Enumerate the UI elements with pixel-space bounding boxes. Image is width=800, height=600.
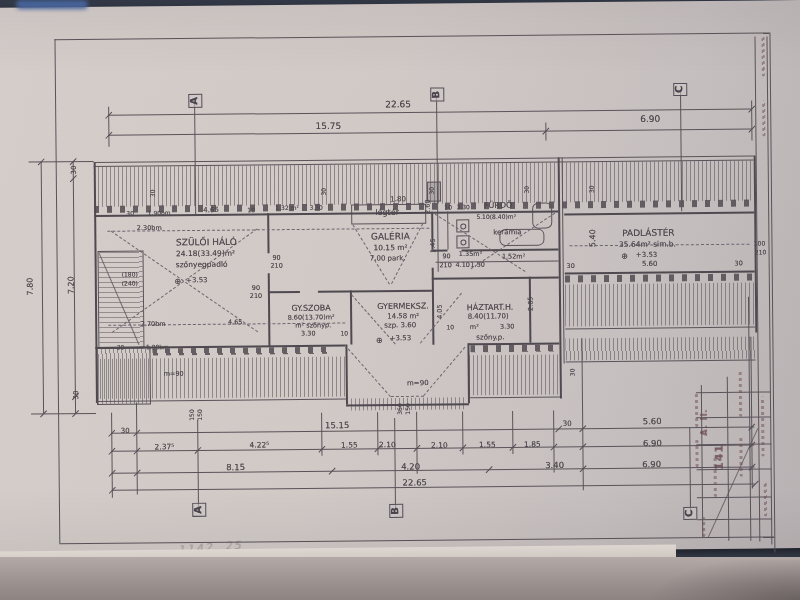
stamp-scribble [764, 482, 767, 516]
table-shadow [540, 560, 800, 600]
dim-label: 1.90bm [148, 210, 171, 217]
room-label-furdo: FÜRDŐ [484, 202, 513, 211]
dim-label: 6.90 [640, 115, 660, 125]
dim-label: 4.65 [203, 207, 219, 214]
section-marker-b: B [430, 88, 444, 102]
dim-label: 30 [321, 188, 327, 196]
dim-label: 5.60 [643, 417, 662, 426]
section-marker-c: C [673, 83, 687, 96]
balcony-hatch-block [96, 346, 151, 405]
plan-line [194, 102, 196, 214]
plan-line [108, 129, 751, 136]
dim-label: 35.64m² sim.b. [619, 240, 676, 248]
dim-label: 4.22⁵ [249, 441, 269, 449]
plan-line [436, 260, 559, 262]
section-marker-a: A [188, 94, 202, 108]
dim-label: 30 [71, 166, 78, 175]
dim-tick [752, 481, 759, 488]
roof-dash-line [348, 348, 391, 397]
stamp-scribble [702, 517, 705, 537]
roof-hatch-wing-1 [565, 283, 755, 327]
section-marker-a-bottom: A [192, 503, 206, 517]
plan-line [59, 536, 774, 544]
dim-label: 10 [444, 204, 452, 210]
plan-line [345, 345, 347, 405]
dim-label: 90 [252, 285, 260, 292]
dim-label: 1.55 [341, 441, 358, 449]
dim-label: 100 [754, 240, 766, 246]
dim-label: 4.65 [228, 319, 243, 326]
stamp-scribble [739, 437, 742, 477]
dim-label: 15.15 [325, 421, 349, 430]
dim-label: 1.85 [524, 441, 541, 449]
plan-line [267, 213, 269, 253]
dim-label: 2.65 [528, 296, 535, 311]
level-mark-icon: ⊕ [174, 278, 181, 286]
plan-line [565, 327, 755, 330]
level-mark-icon: ⊕ [376, 337, 383, 345]
dim-label: 7.80 [27, 278, 36, 296]
dim-label: 14.58 m² [387, 313, 419, 321]
dim-label: 210 [439, 262, 451, 269]
dim-label: 10.15 m² [373, 244, 407, 252]
stamp-scribble [695, 437, 698, 467]
dim-label: 210 [250, 293, 262, 300]
dim-label: 4.10 [455, 262, 470, 269]
dim-label: 30 [121, 428, 130, 435]
dim-label: 5.10(8.40)m² [476, 214, 516, 221]
stamp-text: 141 [714, 444, 726, 470]
dim-label: 3.30 [301, 330, 316, 337]
plan-line [696, 391, 771, 393]
dim-label: 2.30bm [137, 225, 162, 232]
dim-label: 6.90 [642, 460, 661, 469]
dim-label: kerámia [493, 229, 521, 237]
dim-label: 22.65 [403, 478, 427, 487]
dim-label: 2.60 [425, 199, 432, 214]
dim-label: 1.32 m² [275, 205, 299, 212]
dim-label: +3.53 [636, 252, 658, 260]
dim-label: (180) [122, 271, 138, 277]
plan-line [564, 212, 754, 215]
plan-line [41, 161, 44, 413]
stamp-scribble [762, 100, 765, 136]
plan-line [268, 273, 270, 346]
dim-label: 1.80 [390, 196, 406, 203]
plan-line [54, 32, 769, 40]
dim-label: 1.90bm [146, 344, 169, 351]
plan-line [727, 377, 730, 541]
room-label-galeria: GALÉRIA [371, 232, 410, 242]
dim-label: szőny.p. [476, 334, 504, 342]
plan-stage: 22.6515.756.90ABCABC307.207.803030303030… [0, 0, 800, 600]
dim-label: 30 [563, 421, 572, 428]
plan-line [111, 413, 113, 498]
dim-label: 10 [247, 207, 255, 213]
dim-label: 6.90 [643, 439, 662, 448]
plan-line [197, 420, 199, 512]
dryer-appliance [456, 235, 469, 248]
dim-label: szp. 3.60 [384, 322, 416, 330]
room-label-haztart: HÁZTART.H. [467, 304, 514, 313]
dim-label: 30 [126, 210, 134, 216]
photo-scene: 22.6515.756.90ABCABC307.207.803030303030… [0, 0, 800, 600]
dim-label: 8.15 [226, 463, 245, 472]
plan-line [394, 418, 396, 514]
room-label-gyszoba: GY.SZOBA [291, 304, 331, 313]
dim-label: 1.45 [430, 238, 437, 253]
dim-label: 4.05 [437, 304, 444, 319]
level-mark-icon: ⊕ [621, 253, 628, 261]
room-label-padlaster: PADLÁSTÉR [622, 229, 675, 239]
plan-line [350, 290, 352, 344]
dim-label: 150 [405, 403, 411, 415]
dim-label: 1.52m² [502, 253, 525, 260]
dim-label: 360 [397, 403, 403, 415]
dim-label: 7.00 park. [370, 255, 406, 263]
dim-label: 30 [570, 368, 576, 376]
plan-line [432, 268, 434, 345]
plan-line [697, 468, 772, 470]
dim-label: 3.30 [309, 205, 322, 211]
plan-line [697, 496, 772, 498]
room-label-szuloi-halo: SZÜLŐI HÁLÓ [176, 238, 237, 248]
dim-label: 1.50 [470, 262, 485, 269]
stamp-scribble [761, 397, 765, 457]
roof-hatch-bottom-right [469, 354, 560, 395]
plan-line [112, 484, 755, 491]
dim-label: m² szőnyp. [295, 322, 331, 329]
window-row-bottom-left [152, 347, 332, 356]
room-label-gyermeksz: GYERMEKSZ. [377, 303, 429, 312]
dim-label: 210 [270, 263, 282, 270]
stamp-scribble [695, 393, 698, 427]
dim-label: 90 [272, 255, 280, 262]
dim-label: 15.75 [315, 122, 341, 132]
dim-label: 4.20 [401, 462, 420, 471]
dim-label: 2.37⁵ [155, 443, 175, 451]
rafter-row-wing [565, 274, 755, 283]
dim-label: m² [470, 324, 479, 331]
dim-label: 1.55 [479, 441, 496, 449]
room-label-legter: légtér [375, 209, 399, 218]
dim-label: 30 [589, 185, 595, 193]
window-row-bottom-right [470, 345, 556, 353]
plan-line [54, 39, 60, 543]
section-marker-b-bottom: B [389, 504, 403, 518]
dim-label: 1.35m² [459, 251, 482, 258]
section-marker-c-bottom: C [683, 506, 697, 519]
dim-label: 7.20 [68, 276, 77, 294]
dim-label: 30 [73, 391, 80, 400]
dim-label: 150 [197, 409, 203, 421]
dim-label: 30 [150, 190, 156, 198]
dim-label: 2.70bm [141, 321, 166, 328]
dim-label: 30 [734, 260, 742, 267]
dim-label: m=90 [407, 380, 429, 388]
dim-label: 30 [117, 345, 125, 351]
dim-label: 2.10 [431, 442, 448, 450]
stamp-scribble [739, 371, 742, 417]
dim-label: szőnyegpadló [176, 261, 228, 269]
dim-label: 150 [189, 409, 195, 421]
dim-label: 2.10 [379, 441, 396, 449]
dim-label: 10 [340, 330, 348, 336]
plan-line [268, 291, 300, 293]
plan-line [469, 396, 560, 398]
plan-line [432, 276, 559, 279]
dim-label: 30 [524, 186, 530, 194]
dim-label: 5.60 [642, 261, 658, 268]
dim-label: +3.53 [186, 277, 208, 285]
stamp-text: A. II. [701, 408, 710, 435]
plan-line [467, 343, 469, 403]
plan-line [111, 427, 754, 434]
dim-label: 90 [442, 253, 450, 260]
stamp-scribble [761, 36, 764, 76]
dim-label: 8.40(11.70) [468, 313, 509, 321]
dim-label: 3.40 [545, 461, 564, 470]
plan-line [318, 290, 432, 293]
roof-hatch-wing-2 [565, 337, 755, 361]
plan-line [689, 427, 691, 513]
dim-label: +3.53 [390, 335, 412, 343]
dim-label: 22.65 [385, 100, 411, 110]
plan-line [680, 89, 682, 211]
dim-label: 3.30 [500, 323, 515, 330]
dim-label: 30 [567, 263, 575, 270]
plan-line [447, 212, 448, 250]
dim-label: 24.18(33.49)m² [176, 250, 235, 258]
dim-label: (240) [122, 280, 138, 286]
dim-label: 3.30 [456, 204, 469, 210]
dim-label: 210 [755, 249, 767, 255]
dim-label: 30 [429, 187, 435, 195]
dim-label: m=90 [164, 371, 184, 378]
plan-line [697, 518, 772, 520]
dim-label: 10 [446, 324, 454, 330]
dim-label: 5.40 [589, 229, 598, 247]
roof-dash-line [423, 347, 465, 396]
